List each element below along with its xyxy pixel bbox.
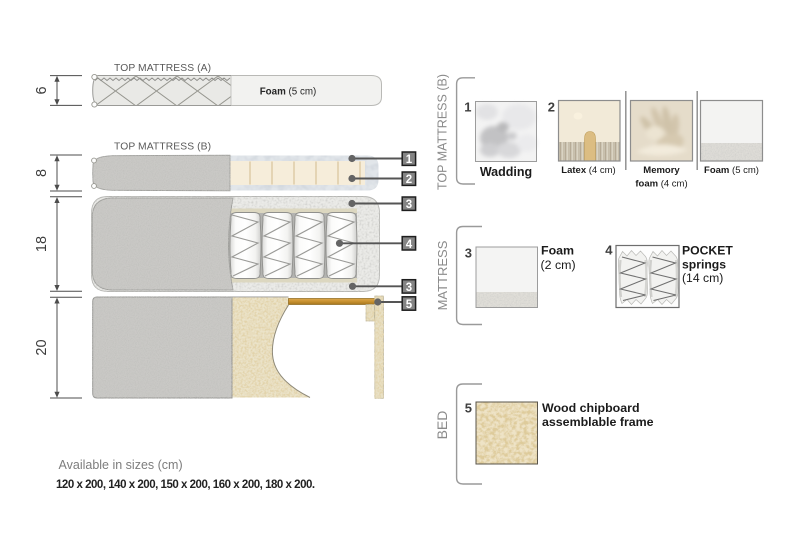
svg-text:2: 2 <box>548 100 555 115</box>
svg-text:20: 20 <box>34 339 50 355</box>
svg-text:6: 6 <box>34 86 50 94</box>
svg-text:4: 4 <box>406 239 413 251</box>
svg-text:Foam (5 cm): Foam (5 cm) <box>704 165 759 176</box>
svg-text:TOP MATTRESS (B): TOP MATTRESS (B) <box>114 142 211 153</box>
svg-text:Wadding: Wadding <box>480 165 532 179</box>
svg-text:18: 18 <box>34 236 50 252</box>
svg-text:1: 1 <box>464 100 471 115</box>
svg-text:5: 5 <box>406 299 413 311</box>
svg-text:Wood chipboard: Wood chipboard <box>542 401 640 415</box>
svg-text:springs: springs <box>682 257 726 271</box>
svg-text:TOP MATTRESS (A): TOP MATTRESS (A) <box>114 63 211 74</box>
svg-text:3: 3 <box>406 199 412 211</box>
svg-text:foam (4 cm): foam (4 cm) <box>635 178 687 189</box>
svg-text:assemblable frame: assemblable frame <box>542 415 654 429</box>
svg-text:(2 cm): (2 cm) <box>541 258 576 272</box>
svg-text:2: 2 <box>406 174 412 186</box>
svg-text:(14 cm): (14 cm) <box>682 271 723 285</box>
svg-text:3: 3 <box>406 282 412 294</box>
svg-text:Available in sizes (cm): Available in sizes (cm) <box>59 458 183 472</box>
svg-text:Latex (4 cm): Latex (4 cm) <box>561 165 615 176</box>
svg-text:Memory: Memory <box>643 165 680 176</box>
svg-text:120 x 200, 140 x 200, 150 x 20: 120 x 200, 140 x 200, 150 x 200, 160 x 2… <box>56 479 315 491</box>
svg-text:Foam: Foam <box>541 244 574 258</box>
svg-text:Foam (5 cm): Foam (5 cm) <box>260 87 317 98</box>
svg-text:3: 3 <box>465 246 472 261</box>
svg-text:8: 8 <box>34 169 50 177</box>
svg-text:TOP MATTRESS (B): TOP MATTRESS (B) <box>436 74 450 190</box>
svg-text:POCKET: POCKET <box>682 244 733 258</box>
svg-text:MATTRESS: MATTRESS <box>435 240 450 310</box>
svg-text:5: 5 <box>465 401 472 416</box>
svg-text:BED: BED <box>434 411 450 440</box>
svg-text:4: 4 <box>605 243 613 258</box>
svg-text:1: 1 <box>406 154 413 166</box>
